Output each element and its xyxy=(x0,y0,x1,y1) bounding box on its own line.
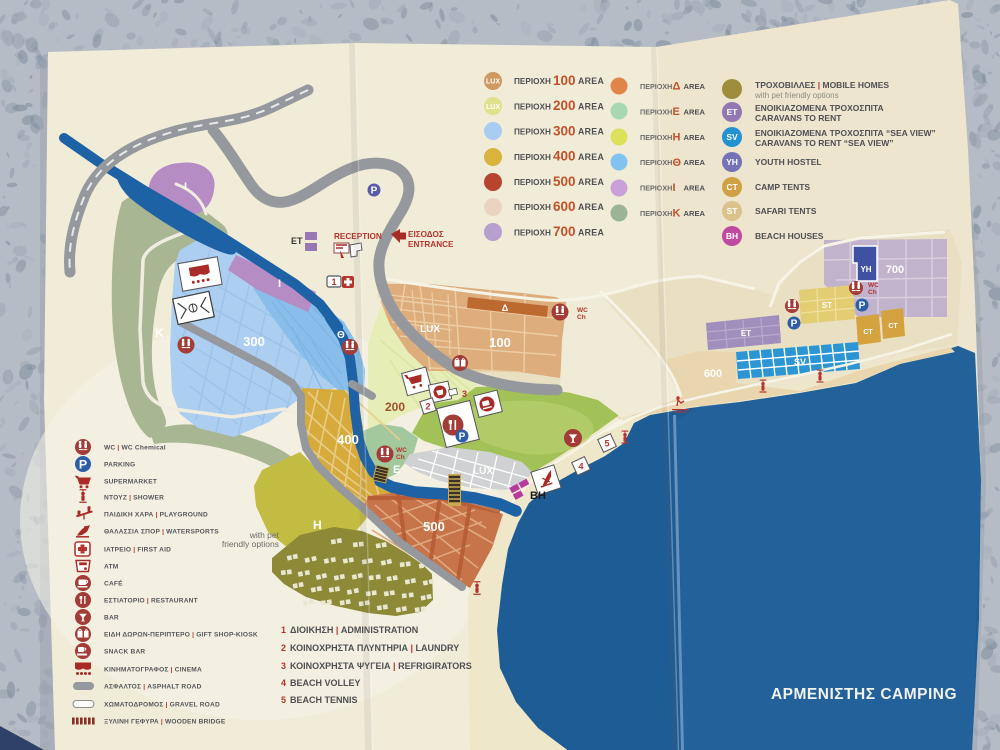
svg-text:100: 100 xyxy=(489,335,511,350)
svg-text:CT: CT xyxy=(888,323,898,330)
svg-text:ΚΟΙΝΟΧΡΗΣΤΑ ΨΥΓΕΙΑ | REFRIGIRA: ΚΟΙΝΟΧΡΗΣΤΑ ΨΥΓΕΙΑ | REFRIGIRATORS xyxy=(290,661,472,671)
svg-text:200: 200 xyxy=(385,400,405,414)
svg-text:AREA: AREA xyxy=(578,101,604,111)
svg-text:ΠΕΡΙΟΧΗ: ΠΕΡΙΟΧΗ xyxy=(514,203,551,212)
svg-text:CT: CT xyxy=(726,182,738,192)
svg-text:400: 400 xyxy=(553,149,576,164)
svg-text:LUX: LUX xyxy=(486,79,500,86)
svg-text:AREA: AREA xyxy=(684,82,706,91)
svg-text:Ι: Ι xyxy=(673,182,676,194)
svg-text:BH: BH xyxy=(530,490,546,502)
svg-text:P: P xyxy=(79,457,87,471)
svg-text:P: P xyxy=(459,432,466,443)
svg-text:P: P xyxy=(371,186,378,197)
svg-text:ΤΡΟΧΟΒΙΛΛΕΣ | MOBILE HOMES: ΤΡΟΧΟΒΙΛΛΕΣ | MOBILE HOMES xyxy=(755,80,889,90)
svg-text:H: H xyxy=(313,518,322,532)
svg-text:CT: CT xyxy=(863,329,873,336)
svg-text:ΠΕΡΙΟΧΗ: ΠΕΡΙΟΧΗ xyxy=(514,178,551,187)
svg-text:Ι: Ι xyxy=(278,278,281,290)
svg-text:AREA: AREA xyxy=(684,133,706,142)
svg-text:2: 2 xyxy=(281,643,286,653)
svg-text:Δ: Δ xyxy=(673,81,681,93)
svg-text:ΕΝΟΙΚΙΑΖΟΜΕΝΑ ΤΡΟΧΟΣΠΙΤΑ: ΕΝΟΙΚΙΑΖΟΜΕΝΑ ΤΡΟΧΟΣΠΙΤΑ xyxy=(755,103,884,113)
svg-text:PARKING: PARKING xyxy=(104,462,135,469)
svg-text:ΘΑΛΑΣΣΙΑ ΣΠΟΡ | WATERSPORTS: ΘΑΛΑΣΣΙΑ ΣΠΟΡ | WATERSPORTS xyxy=(104,529,219,536)
svg-text:ΙΑΤΡΕΙΟ | FIRST AID: ΙΑΤΡΕΙΟ | FIRST AID xyxy=(104,547,171,554)
svg-text:ΠΕΡΙΟΧΗ: ΠΕΡΙΟΧΗ xyxy=(514,228,551,237)
svg-text:2: 2 xyxy=(425,402,430,412)
svg-text:BEACH TENNIS: BEACH TENNIS xyxy=(290,695,358,705)
svg-text:ΕΣΤΙΑΤΟΡΙΟ | RESTAURANT: ΕΣΤΙΑΤΟΡΙΟ | RESTAURANT xyxy=(104,598,198,605)
svg-text:BEACH VOLLEY: BEACH VOLLEY xyxy=(290,678,361,688)
svg-text:Ι: Ι xyxy=(184,181,187,193)
svg-text:4: 4 xyxy=(281,678,286,688)
svg-text:600: 600 xyxy=(704,368,722,380)
svg-text:AREA: AREA xyxy=(684,184,706,193)
svg-text:AREA: AREA xyxy=(578,202,604,212)
svg-text:LUX: LUX xyxy=(473,466,493,477)
svg-text:P: P xyxy=(791,319,798,330)
svg-text:AREA: AREA xyxy=(578,227,604,237)
svg-text:Θ: Θ xyxy=(337,330,345,341)
svg-text:ET: ET xyxy=(727,107,739,117)
svg-text:BEACH HOUSES: BEACH HOUSES xyxy=(755,231,824,241)
svg-text:200: 200 xyxy=(553,98,576,113)
svg-text:YOUTH HOSTEL: YOUTH HOSTEL xyxy=(755,157,822,167)
svg-text:LUX: LUX xyxy=(420,324,440,335)
svg-text:friendly options: friendly options xyxy=(222,539,279,549)
svg-text:ST: ST xyxy=(822,301,832,310)
svg-text:ATM: ATM xyxy=(104,564,119,571)
svg-text:E: E xyxy=(393,464,400,476)
svg-text:Η: Η xyxy=(673,131,681,143)
svg-text:ΠΕΡΙΟΧΗ: ΠΕΡΙΟΧΗ xyxy=(514,102,551,111)
svg-text:400: 400 xyxy=(337,432,359,447)
svg-text:ST: ST xyxy=(727,206,739,216)
svg-text:4: 4 xyxy=(578,462,583,472)
svg-text:ΚΙΝΗΜΑΤΟΓΡΑΦΟΣ | CINEMA: ΚΙΝΗΜΑΤΟΓΡΑΦΟΣ | CINEMA xyxy=(104,667,202,674)
svg-text:WC: WC xyxy=(577,307,588,314)
svg-text:with pet friendly options: with pet friendly options xyxy=(754,91,839,100)
svg-text:ΧΩΜΑΤΟΔΡΟΜΟΣ | GRAVEL ROAD: ΧΩΜΑΤΟΔΡΟΜΟΣ | GRAVEL ROAD xyxy=(104,702,220,709)
svg-text:SV: SV xyxy=(726,132,738,142)
svg-text:600: 600 xyxy=(553,199,576,214)
svg-text:AREA: AREA xyxy=(684,158,706,167)
svg-text:ΝΤΟΥΖ | SHOWER: ΝΤΟΥΖ | SHOWER xyxy=(104,495,164,502)
svg-text:CARAVANS TO RENT “SEA VIEW”: CARAVANS TO RENT “SEA VIEW” xyxy=(755,138,894,148)
svg-text:P: P xyxy=(859,301,866,312)
svg-text:ΞΥΛΙΝΗ ΓΕΦΥΡΑ | WOODEN BRIDGE: ΞΥΛΙΝΗ ΓΕΦΥΡΑ | WOODEN BRIDGE xyxy=(104,719,226,726)
svg-text:LUX: LUX xyxy=(486,104,500,111)
svg-text:AREA: AREA xyxy=(578,127,604,137)
svg-text:CARAVANS TO RENT: CARAVANS TO RENT xyxy=(755,113,842,123)
svg-text:BH: BH xyxy=(726,231,738,241)
svg-text:ΕΙΔΗ ΔΩΡΩΝ-ΠΕΡΙΠΤΕΡΟ | GIFT SH: ΕΙΔΗ ΔΩΡΩΝ-ΠΕΡΙΠΤΕΡΟ | GIFT SHOP-KIOSK xyxy=(104,632,258,639)
svg-text:ΑΡΜΕΝΙΣΤΗΣ CAMPING: ΑΡΜΕΝΙΣΤΗΣ CAMPING xyxy=(771,686,957,703)
svg-text:500: 500 xyxy=(423,519,445,534)
svg-text:1: 1 xyxy=(281,625,286,635)
svg-text:300: 300 xyxy=(243,334,265,349)
svg-text:5: 5 xyxy=(604,439,609,449)
svg-text:YH: YH xyxy=(860,265,871,274)
svg-text:SAFARI TENTS: SAFARI TENTS xyxy=(755,206,817,216)
svg-text:700: 700 xyxy=(886,264,904,276)
svg-text:300: 300 xyxy=(553,123,576,138)
svg-text:ΔΙΟΙΚΗΣΗ | ADMINISTRATION: ΔΙΟΙΚΗΣΗ | ADMINISTRATION xyxy=(290,625,418,635)
svg-text:Ε: Ε xyxy=(673,106,680,118)
svg-text:3: 3 xyxy=(281,661,286,671)
svg-text:3: 3 xyxy=(462,389,467,399)
svg-text:ΠΕΡΙΟΧΗ: ΠΕΡΙΟΧΗ xyxy=(514,153,551,162)
svg-text:AREA: AREA xyxy=(684,209,706,218)
svg-text:Θ: Θ xyxy=(673,157,682,169)
svg-text:ET: ET xyxy=(741,329,751,338)
svg-text:100: 100 xyxy=(553,73,576,88)
svg-text:SUPERMARKET: SUPERMARKET xyxy=(104,479,157,486)
svg-text:SV: SV xyxy=(794,357,806,367)
svg-text:ΠΕΡΙΟΧΗ: ΠΕΡΙΟΧΗ xyxy=(514,77,551,86)
svg-text:5: 5 xyxy=(281,695,286,705)
svg-text:ΕΝΟΙΚΙΑΖΟΜΕΝΑ ΤΡΟΧΟΣΠΙΤΑ “SEA: ΕΝΟΙΚΙΑΖΟΜΕΝΑ ΤΡΟΧΟΣΠΙΤΑ “SEA VIEW” xyxy=(755,128,936,138)
svg-text:WC | WC Chemical: WC | WC Chemical xyxy=(104,445,166,452)
svg-text:ENTRANCE: ENTRANCE xyxy=(408,240,454,249)
svg-text:Ch: Ch xyxy=(577,314,586,321)
svg-text:ΠΑΙΔΙΚΗ ΧΑΡΑ | PLAYGROUND: ΠΑΙΔΙΚΗ ΧΑΡΑ | PLAYGROUND xyxy=(104,512,208,519)
svg-text:700: 700 xyxy=(553,224,576,239)
svg-text:WC: WC xyxy=(396,447,407,454)
svg-text:SNACK BAR: SNACK BAR xyxy=(104,649,145,656)
svg-text:Κ: Κ xyxy=(155,326,164,340)
svg-text:AREA: AREA xyxy=(578,177,604,187)
svg-text:WC: WC xyxy=(868,282,879,289)
svg-text:Δ: Δ xyxy=(502,303,509,313)
svg-text:Ch: Ch xyxy=(868,289,877,296)
svg-text:1: 1 xyxy=(331,277,336,287)
svg-text:AREA: AREA xyxy=(578,76,604,86)
svg-text:ΠΕΡΙΟΧΗ: ΠΕΡΙΟΧΗ xyxy=(514,128,551,137)
svg-text:BAR: BAR xyxy=(104,615,119,622)
svg-text:CAFÉ: CAFÉ xyxy=(104,579,123,588)
svg-text:YH: YH xyxy=(726,157,738,167)
svg-text:ΚΟΙΝΟΧΡΗΣΤΑ ΠΛΥΝΤΗΡΙΑ | LAUNDR: ΚΟΙΝΟΧΡΗΣΤΑ ΠΛΥΝΤΗΡΙΑ | LAUNDRY xyxy=(290,643,459,653)
svg-text:ET: ET xyxy=(291,236,303,246)
svg-text:AREA: AREA xyxy=(684,107,706,116)
svg-text:ΑΣΦΑΛΤΟΣ | ASPHALT ROAD: ΑΣΦΑΛΤΟΣ | ASPHALT ROAD xyxy=(104,684,202,691)
svg-text:Κ: Κ xyxy=(673,208,681,220)
svg-text:Ch: Ch xyxy=(396,454,405,461)
svg-text:500: 500 xyxy=(553,174,576,189)
svg-text:AREA: AREA xyxy=(578,152,604,162)
svg-text:CAMP TENTS: CAMP TENTS xyxy=(755,182,810,192)
svg-text:ΕΙΣΟΔΟΣ: ΕΙΣΟΔΟΣ xyxy=(408,230,444,239)
